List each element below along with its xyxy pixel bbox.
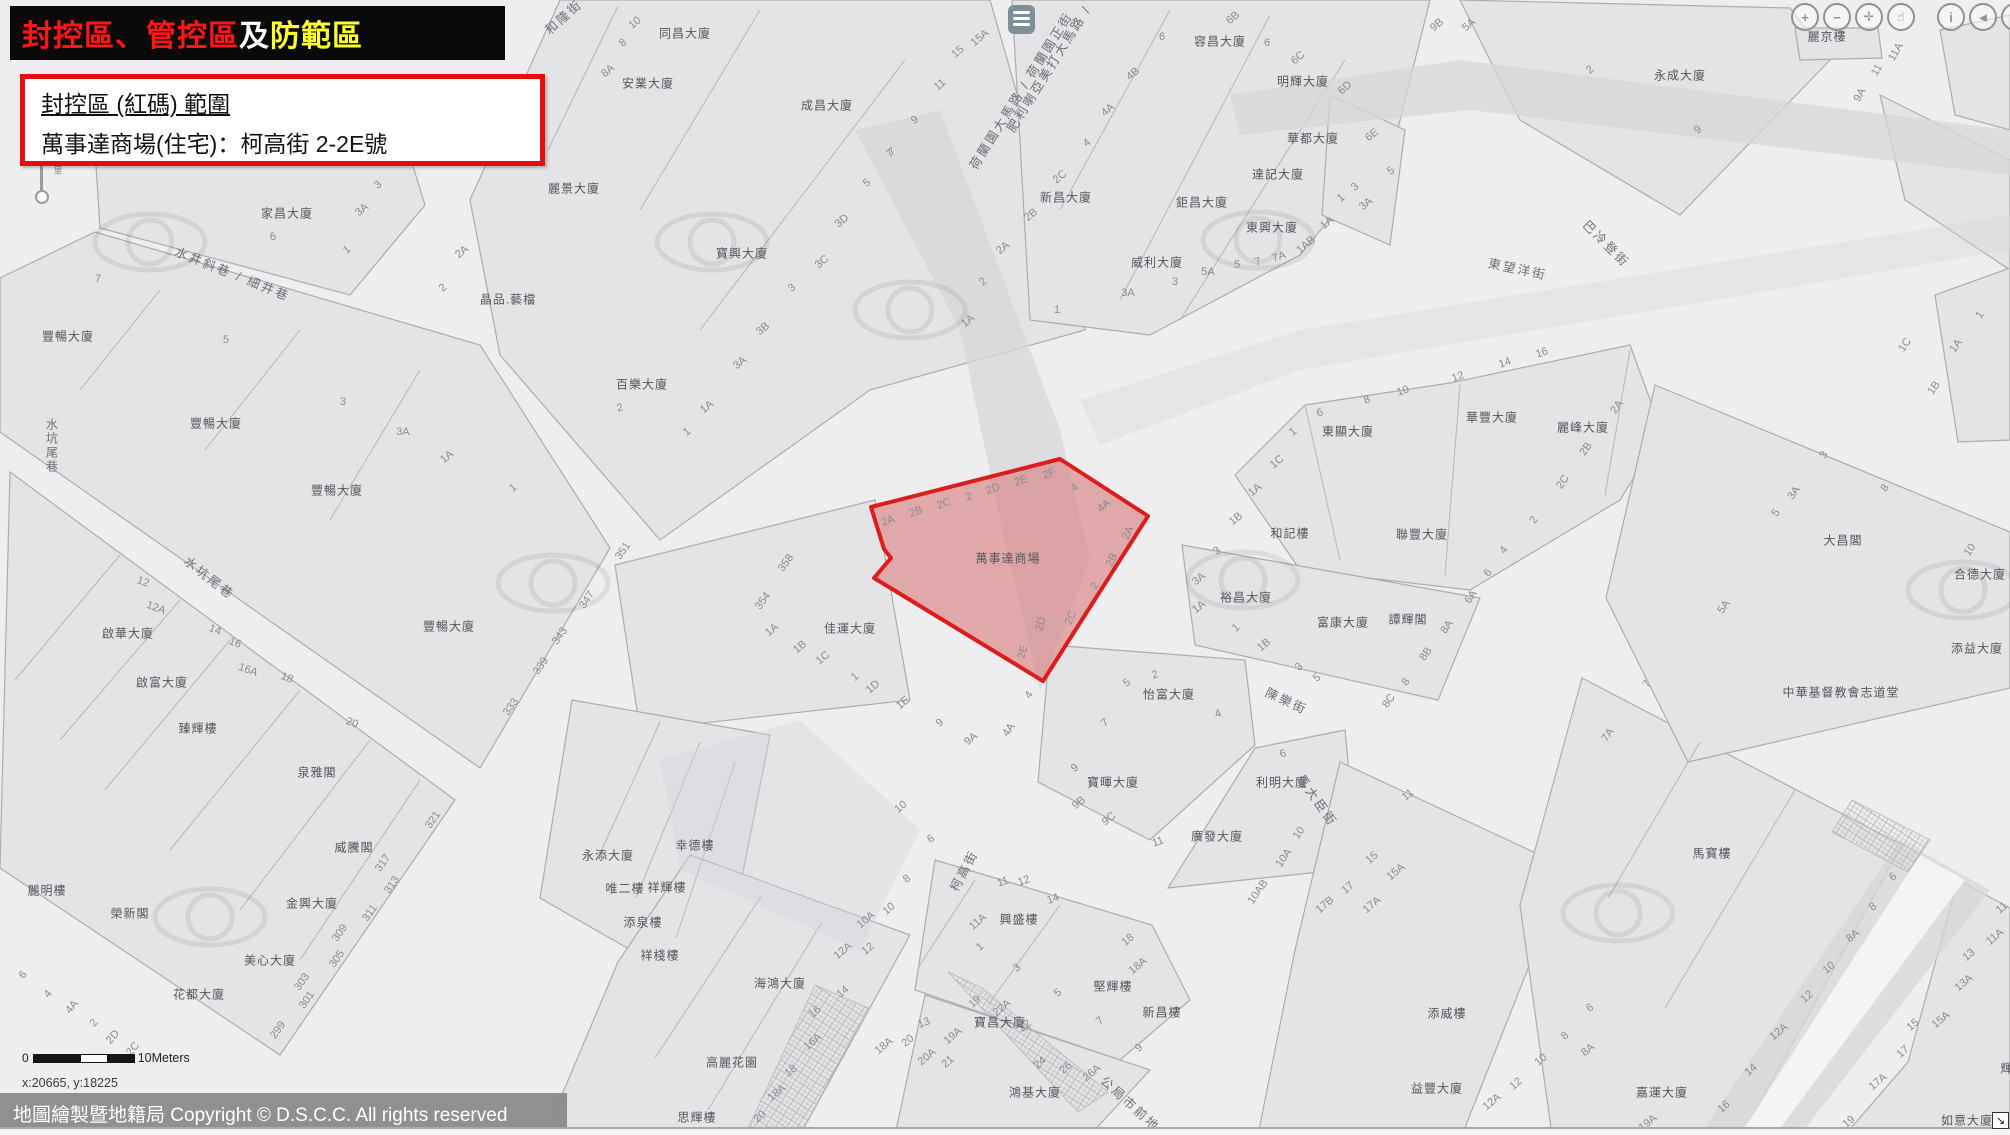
lockdown-info-box: 封控區 (紅碼) 範圍 萬事達商場(住宅)：柯高街 2-2E號	[20, 74, 545, 166]
map-frame-strip	[0, 1129, 2010, 1135]
overview-corner-button[interactable]: ↘	[1992, 1112, 2009, 1129]
scale-bar: 0 10Meters	[22, 1051, 190, 1065]
info-box-address: 萬事達商場(住宅)：柯高街 2-2E號	[41, 125, 540, 159]
page-title: 封控區、管控區 及 防範區	[10, 6, 505, 60]
title-yellow-text: 防範區	[270, 11, 363, 55]
full-extent-icon[interactable]: ✛	[1855, 3, 1883, 31]
zoom-out-icon[interactable]: −	[1823, 3, 1851, 31]
info-icon[interactable]: i	[1937, 3, 1965, 31]
scale-bar-graphic	[33, 1054, 135, 1063]
cursor-coordinates: x:20665, y:18225	[22, 1076, 118, 1090]
title-white-text: 及	[239, 11, 270, 55]
map-viewport[interactable]: 家昌大廈豐暢大廈豐暢大廈豐暢大廈豐暢大廈啟華大廈啟富大廈臻輝樓泉雅閣威騰閣麗明樓…	[0, 0, 2010, 1135]
map-canvas[interactable]	[0, 0, 2010, 1135]
map-toolbar: +−✛☝i◄►	[1791, 3, 2010, 31]
info-box-heading: 封控區 (紅碼) 範圍	[41, 85, 540, 119]
pan-icon[interactable]: ☝	[1887, 3, 1915, 31]
back-icon[interactable]: ◄	[1969, 3, 1997, 31]
forward-icon[interactable]: ►	[2001, 3, 2010, 31]
lockdown-zone-polygon[interactable]	[871, 459, 1148, 681]
pole-base-icon	[35, 190, 49, 204]
zoom-in-icon[interactable]: +	[1791, 3, 1819, 31]
scale-distance-label: 10Meters	[138, 1051, 190, 1065]
scale-zero-label: 0	[22, 1051, 29, 1065]
title-red-text: 封控區、管控區	[22, 11, 239, 55]
map-marker-icon[interactable]	[1008, 5, 1035, 34]
